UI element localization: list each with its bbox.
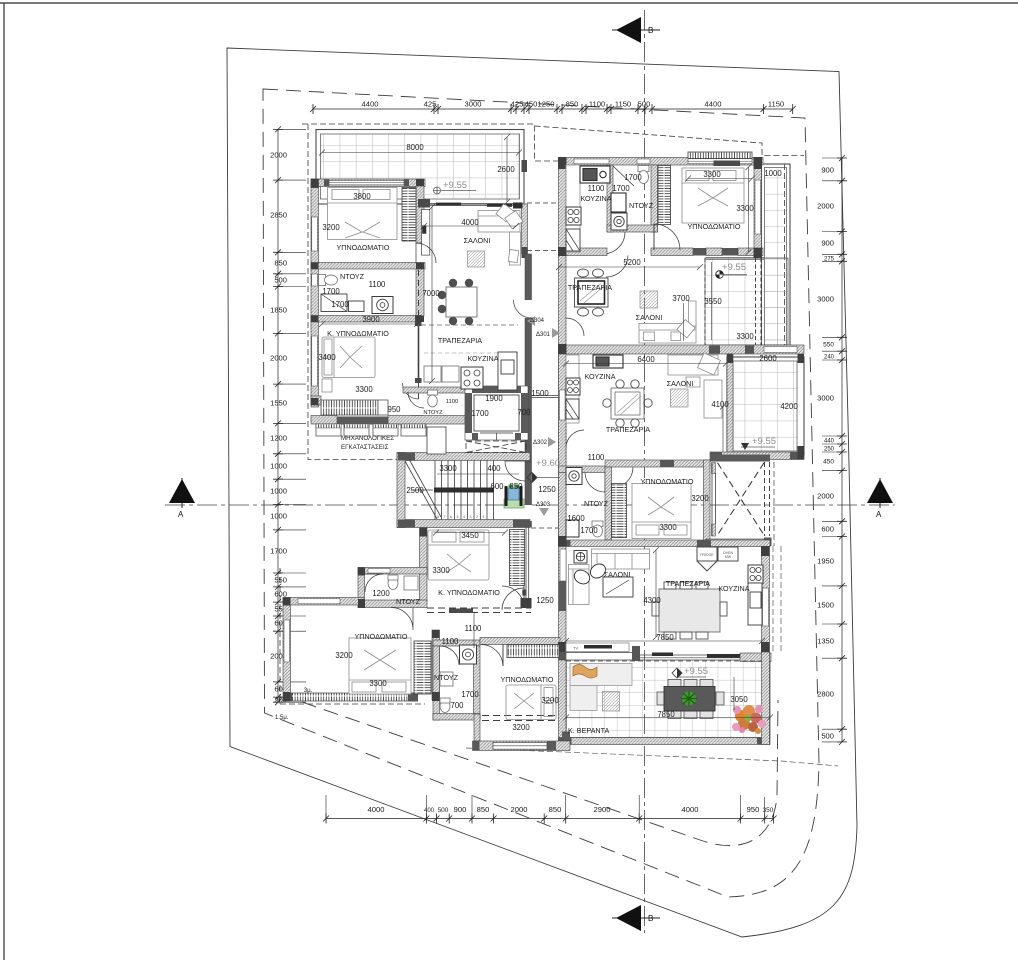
- svg-text:ΤΡΑΠΕΖΑΡΙΑ: ΤΡΑΠΕΖΑΡΙΑ: [568, 283, 612, 292]
- svg-text:1500: 1500: [531, 389, 549, 398]
- svg-text:600: 600: [821, 525, 834, 534]
- svg-text:440: 440: [824, 439, 835, 445]
- svg-text:B: B: [648, 26, 653, 35]
- svg-text:3550: 3550: [704, 297, 722, 306]
- svg-text:4300: 4300: [643, 596, 661, 605]
- svg-text:850: 850: [509, 482, 523, 491]
- svg-text:600: 600: [274, 590, 287, 599]
- svg-text:3200: 3200: [541, 696, 559, 705]
- svg-text:550: 550: [274, 576, 287, 585]
- svg-text:3400: 3400: [318, 353, 336, 362]
- svg-text:1700: 1700: [331, 300, 349, 309]
- svg-text:2000: 2000: [270, 354, 287, 363]
- svg-text:450: 450: [823, 459, 834, 466]
- svg-text:5200: 5200: [623, 258, 641, 267]
- svg-text:400: 400: [487, 464, 501, 473]
- svg-text:7000: 7000: [422, 289, 440, 298]
- svg-text:ΜΗΧΑΝΟΛΟΓΙΚΕΣ: ΜΗΧΑΝΟΛΟΓΙΚΕΣ: [341, 435, 394, 442]
- svg-text:3300: 3300: [703, 170, 721, 179]
- svg-text:TV: TV: [573, 646, 578, 651]
- svg-text:+9.55: +9.55: [752, 436, 776, 447]
- svg-text:900: 900: [821, 239, 834, 248]
- svg-text:ΚΟΥΖΙΝΑ: ΚΟΥΖΙΝΑ: [467, 354, 498, 363]
- svg-text:Δ302: Δ302: [533, 440, 548, 446]
- svg-text:ΝΤΟΥΖ: ΝΤΟΥΖ: [340, 272, 365, 281]
- svg-text:3200: 3200: [335, 651, 353, 660]
- svg-text:950: 950: [747, 805, 760, 814]
- svg-text:2800: 2800: [817, 690, 834, 699]
- svg-text:ΤΡΑΠΕΖΑΡΙΑ: ΤΡΑΠΕΖΑΡΙΑ: [606, 425, 650, 434]
- svg-text:2: 2: [476, 515, 478, 519]
- svg-text:275: 275: [824, 257, 835, 263]
- svg-text:3: 3: [470, 515, 472, 519]
- svg-text:1500: 1500: [817, 601, 834, 610]
- svg-text:3800: 3800: [353, 192, 371, 201]
- svg-text:700: 700: [517, 408, 531, 417]
- svg-text:4000: 4000: [368, 805, 385, 814]
- svg-text:6: 6: [450, 515, 452, 519]
- svg-text:ΚΟΥΖΙΝΑ: ΚΟΥΖΙΝΑ: [584, 372, 615, 381]
- svg-text:1200: 1200: [270, 434, 287, 443]
- svg-text:1700: 1700: [624, 173, 642, 182]
- svg-text:ΤΡΑΠΕΖΑΡΙΑ: ΤΡΑΠΕΖΑΡΙΑ: [438, 336, 482, 345]
- svg-text:1250: 1250: [538, 485, 556, 494]
- svg-text:1000: 1000: [270, 487, 287, 496]
- svg-text:3μ.: 3μ.: [304, 688, 313, 694]
- svg-text:2900: 2900: [594, 805, 611, 814]
- svg-text:4000: 4000: [461, 218, 479, 227]
- svg-text:1700: 1700: [612, 184, 630, 193]
- svg-text:4000: 4000: [682, 805, 699, 814]
- svg-text:ΥΠΝΟΔΩΜΑΤΙΟ: ΥΠΝΟΔΩΜΑΤΙΟ: [687, 222, 740, 231]
- svg-text:1250: 1250: [536, 596, 554, 605]
- svg-text:Δ304: Δ304: [530, 318, 545, 324]
- svg-text:7850: 7850: [656, 633, 674, 642]
- svg-text:900: 900: [821, 166, 834, 175]
- svg-text:2600: 2600: [497, 165, 515, 174]
- svg-text:3300: 3300: [439, 464, 457, 473]
- svg-text:1200: 1200: [372, 589, 390, 598]
- svg-text:1100: 1100: [588, 184, 605, 193]
- svg-text:4: 4: [463, 515, 465, 519]
- svg-text:1600: 1600: [567, 514, 585, 523]
- svg-text:400: 400: [424, 808, 435, 814]
- svg-text:MW: MW: [725, 555, 732, 559]
- svg-text:3200: 3200: [691, 494, 709, 503]
- svg-text:ΝΤΟΥΖ: ΝΤΟΥΖ: [584, 499, 609, 508]
- svg-text:+9.60: +9.60: [536, 458, 560, 469]
- svg-text:A: A: [178, 510, 184, 519]
- svg-text:1150: 1150: [768, 100, 784, 109]
- svg-text:3000: 3000: [817, 295, 834, 304]
- svg-text:2850: 2850: [270, 211, 287, 220]
- svg-text:Κ. ΥΠΝΟΔΩΜΑΤΙΟ: Κ. ΥΠΝΟΔΩΜΑΤΙΟ: [327, 329, 389, 338]
- svg-text:500: 500: [638, 100, 651, 109]
- svg-text:1100: 1100: [446, 399, 458, 405]
- svg-text:1100: 1100: [442, 637, 459, 646]
- svg-text:2000: 2000: [511, 805, 528, 814]
- svg-text:1550: 1550: [270, 399, 287, 408]
- svg-text:1000: 1000: [270, 512, 287, 521]
- svg-text:850: 850: [549, 805, 562, 814]
- svg-text:8000: 8000: [406, 143, 424, 152]
- svg-text:Κ. ΥΠΝΟΔΩΜΑΤΙΟ: Κ. ΥΠΝΟΔΩΜΑΤΙΟ: [438, 588, 500, 597]
- svg-text:ΣΑΛΟΝΙ: ΣΑΛΟΝΙ: [464, 236, 491, 245]
- svg-text:3200: 3200: [512, 723, 530, 732]
- svg-text:ΤΡΑΠΕΖΑΡΙΑ: ΤΡΑΠΕΖΑΡΙΑ: [666, 579, 710, 588]
- svg-text:ΥΠΝΟΔΩΜΑΤΙΟ: ΥΠΝΟΔΩΜΑΤΙΟ: [640, 477, 693, 486]
- svg-text:ΝΤΟΥΖ: ΝΤΟΥΖ: [629, 201, 654, 210]
- svg-text:1700: 1700: [461, 690, 479, 699]
- svg-text:4200: 4200: [780, 402, 798, 411]
- svg-text:240: 240: [824, 355, 835, 361]
- svg-text:850: 850: [274, 259, 287, 268]
- svg-text:7850: 7850: [657, 710, 675, 719]
- svg-text:8: 8: [437, 515, 439, 519]
- svg-text:700: 700: [450, 701, 464, 710]
- svg-text:4400: 4400: [705, 100, 722, 109]
- svg-text:ΣΑΛΟΝΙ: ΣΑΛΟΝΙ: [667, 379, 694, 388]
- svg-text:4400: 4400: [362, 100, 379, 109]
- svg-text:3300: 3300: [369, 679, 387, 688]
- svg-text:450: 450: [525, 100, 538, 109]
- svg-text:1700: 1700: [471, 409, 489, 418]
- svg-text:600: 600: [490, 482, 504, 491]
- svg-text:+9.55: +9.55: [443, 180, 467, 191]
- svg-text:ΕΓΚΑΤΑΣΤΑΣΕΙΣ: ΕΓΚΑΤΑΣΤΑΣΕΙΣ: [341, 444, 389, 451]
- svg-text:3300: 3300: [736, 332, 754, 341]
- svg-text:ΝΤΟΥΖ: ΝΤΟΥΖ: [423, 410, 443, 416]
- svg-text:ΚΟΥΖΙΝΑ: ΚΟΥΖΙΝΑ: [718, 584, 749, 593]
- svg-text:1100: 1100: [465, 624, 482, 633]
- svg-text:1000: 1000: [764, 169, 782, 178]
- svg-text:1100: 1100: [588, 453, 605, 462]
- svg-text:ΥΠΝΟΔΩΜΑΤΙΟ: ΥΠΝΟΔΩΜΑΤΙΟ: [336, 243, 389, 252]
- svg-text:3300: 3300: [659, 523, 677, 532]
- svg-text:3000: 3000: [817, 394, 834, 403]
- svg-text:2600: 2600: [759, 354, 777, 363]
- svg-text:850: 850: [566, 100, 579, 109]
- svg-text:1950: 1950: [817, 557, 834, 566]
- svg-text:250: 250: [824, 447, 835, 453]
- svg-text:A: A: [876, 510, 882, 519]
- svg-text:+9.55: +9.55: [722, 262, 746, 273]
- svg-text:850: 850: [477, 805, 490, 814]
- svg-text:3300: 3300: [736, 204, 754, 213]
- svg-text:425: 425: [511, 100, 524, 109]
- svg-text:6400: 6400: [637, 355, 655, 364]
- svg-text:ΚΟΥΖΙΝΑ: ΚΟΥΖΙΝΑ: [580, 194, 611, 203]
- svg-text:1150: 1150: [615, 100, 631, 109]
- svg-text:1700: 1700: [322, 287, 340, 296]
- svg-text:FRIDGE: FRIDGE: [700, 553, 714, 557]
- svg-text:1700: 1700: [270, 547, 287, 556]
- svg-text:3000: 3000: [465, 100, 482, 109]
- svg-text:350: 350: [763, 807, 774, 814]
- svg-text:3700: 3700: [672, 294, 690, 303]
- svg-text:B: B: [648, 914, 653, 923]
- svg-text:1700: 1700: [580, 526, 598, 535]
- svg-text:2000: 2000: [817, 202, 834, 211]
- svg-text:ΣΑΛΟΝΙ: ΣΑΛΟΝΙ: [636, 313, 663, 322]
- svg-text:2000: 2000: [817, 492, 834, 501]
- svg-text:3050: 3050: [730, 695, 748, 704]
- svg-text:3300: 3300: [355, 385, 373, 394]
- svg-text:1350: 1350: [817, 637, 834, 646]
- svg-text:2500: 2500: [406, 486, 424, 495]
- svg-text:3900: 3900: [362, 315, 380, 324]
- svg-text:Δ301: Δ301: [536, 332, 551, 338]
- svg-text:1100: 1100: [369, 280, 386, 289]
- svg-text:1: 1: [483, 515, 485, 519]
- svg-text:3200: 3200: [322, 223, 340, 232]
- svg-text:2000: 2000: [270, 151, 287, 160]
- svg-text:3300: 3300: [432, 566, 450, 575]
- svg-text:1250: 1250: [538, 100, 555, 109]
- svg-text:1900: 1900: [485, 394, 503, 403]
- svg-text:ΥΠΝΟΔΩΜΑΤΙΟ: ΥΠΝΟΔΩΜΑΤΙΟ: [354, 632, 407, 641]
- svg-text:ΣΑΛΟΝΙ: ΣΑΛΟΝΙ: [604, 570, 631, 579]
- svg-text:ΝΤΟΥΖ: ΝΤΟΥΖ: [396, 597, 421, 606]
- svg-text:500: 500: [821, 732, 834, 741]
- svg-text:ΥΠΝΟΔΩΜΑΤΙΟ: ΥΠΝΟΔΩΜΑΤΙΟ: [500, 675, 553, 684]
- svg-text:425: 425: [424, 100, 437, 109]
- svg-text:+9.55: +9.55: [684, 666, 708, 677]
- svg-text:5: 5: [457, 515, 459, 519]
- svg-text:4100: 4100: [711, 400, 729, 409]
- svg-text:500: 500: [438, 807, 449, 814]
- svg-text:3450: 3450: [461, 531, 479, 540]
- svg-text:1.5μ.: 1.5μ.: [275, 715, 289, 721]
- svg-text:550: 550: [823, 342, 834, 349]
- svg-text:1850: 1850: [270, 306, 287, 315]
- svg-text:Κ. ΒΕΡΑΝΤΑ: Κ. ΒΕΡΑΝΤΑ: [568, 726, 609, 735]
- svg-text:900: 900: [454, 805, 467, 814]
- svg-text:500: 500: [274, 276, 287, 285]
- svg-text:1100: 1100: [589, 100, 605, 109]
- svg-text:7: 7: [444, 515, 446, 519]
- svg-text:950: 950: [387, 405, 401, 414]
- svg-text:ΝΤΟΥΖ: ΝΤΟΥΖ: [434, 673, 459, 682]
- svg-text:Δ303: Δ303: [536, 502, 551, 508]
- svg-text:1000: 1000: [270, 462, 287, 471]
